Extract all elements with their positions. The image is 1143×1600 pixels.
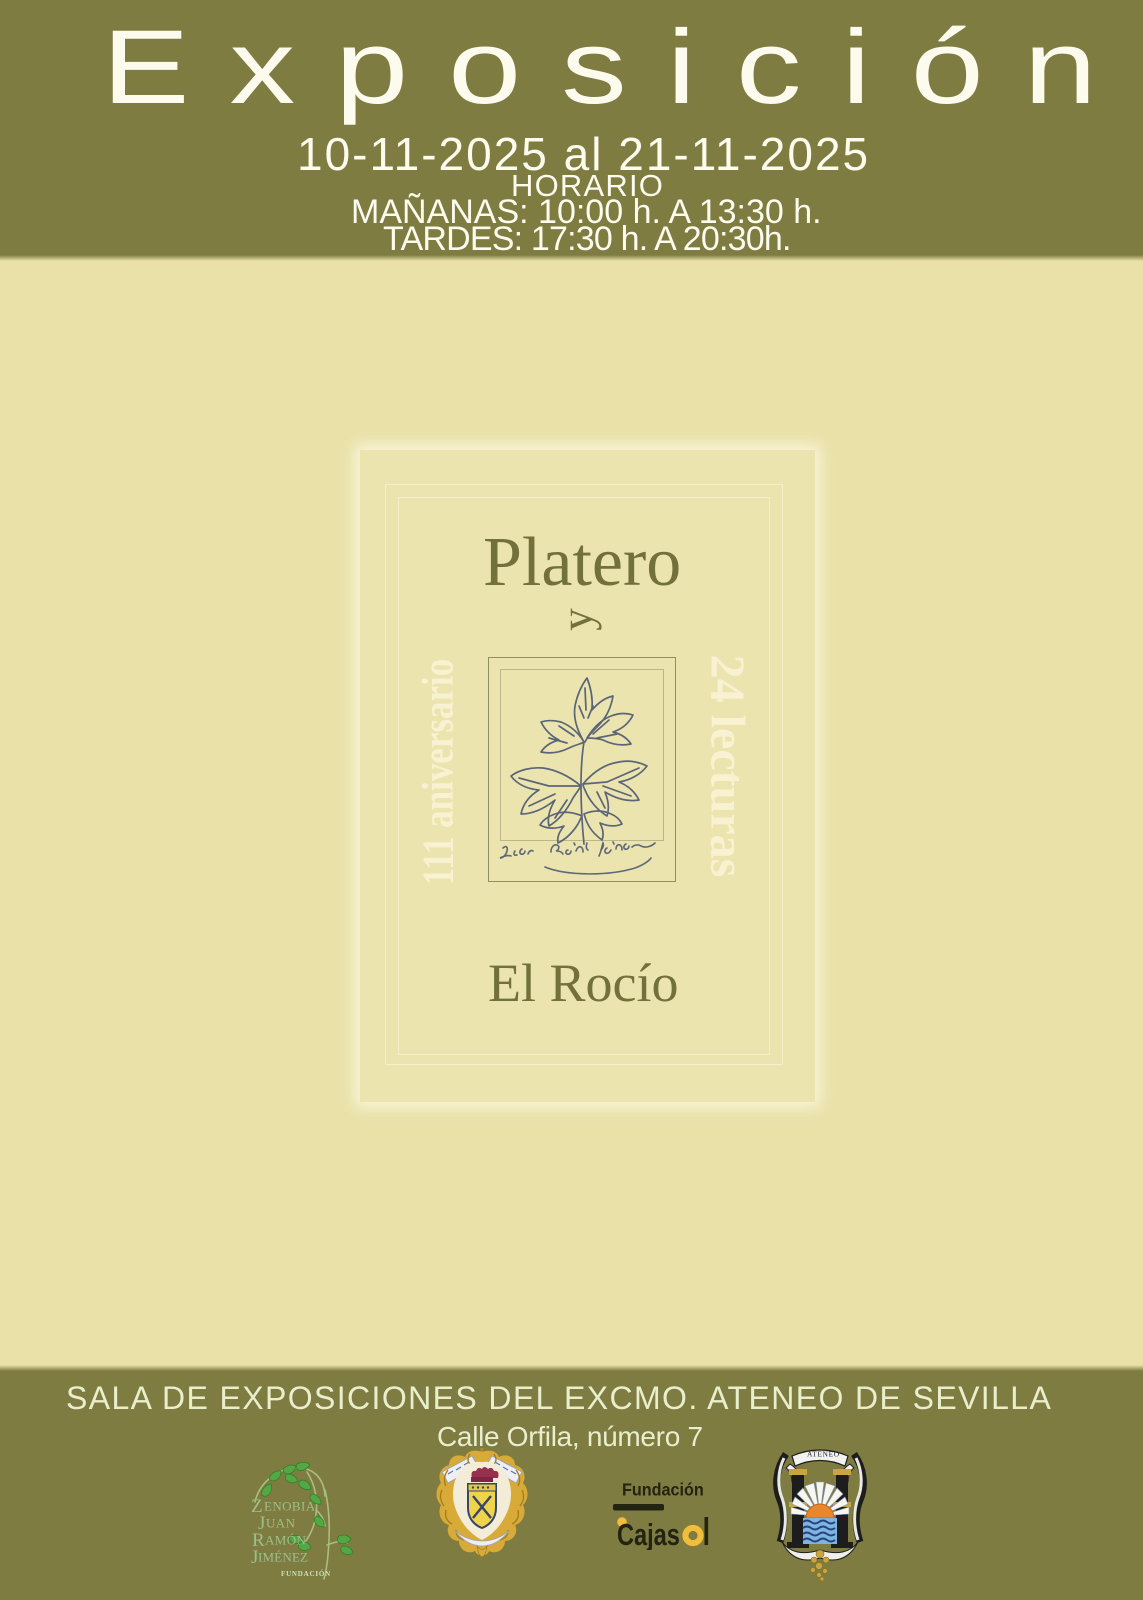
svg-text:IMÉNEZ: IMÉNEZ — [258, 1550, 308, 1565]
svg-text:Fundación: Fundación — [622, 1480, 704, 1500]
svg-text:ENOBIA: ENOBIA — [264, 1499, 316, 1514]
svg-text:FUNDACIÓN: FUNDACIÓN — [281, 1570, 331, 1578]
svg-text:UAN: UAN — [266, 1516, 296, 1531]
svg-text:ATENEO: ATENEO — [807, 1450, 840, 1459]
svg-text:AMÓN: AMÓN — [265, 1533, 307, 1548]
svg-text:Cajas: Cajas — [617, 1517, 680, 1550]
